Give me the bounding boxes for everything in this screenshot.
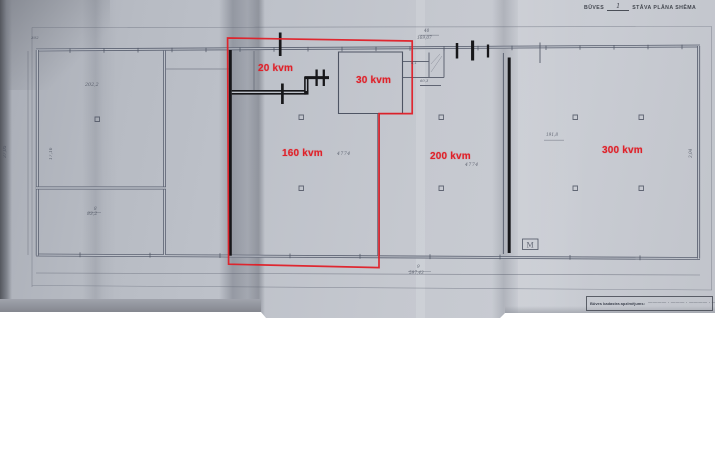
dimension-text: 4,1 xyxy=(411,61,417,65)
dimension-lines xyxy=(28,35,700,275)
room-size-label: 20 kvm xyxy=(258,64,293,74)
dimension-text: 191,8 xyxy=(546,133,558,137)
title-block-label: Būves kadastra apzīmējums: xyxy=(590,301,645,306)
column-symbols xyxy=(95,115,644,191)
dimension-text: 17,16 xyxy=(50,147,54,160)
dimension-text: 302 xyxy=(31,36,39,40)
dimension-text: 202,2 xyxy=(85,84,99,89)
marker-ticks xyxy=(280,33,488,105)
floor-plan-drawing: M xyxy=(0,0,715,318)
room-size-label: 200 kvm xyxy=(430,152,471,162)
title-block: Būves kadastra apzīmējums: ———— · ——— · … xyxy=(586,296,713,311)
dimension-text: 83,2 xyxy=(87,213,97,218)
sheet-border xyxy=(32,27,712,291)
dimension-text: 40 xyxy=(424,29,429,33)
room-size-label: 300 kvm xyxy=(602,146,643,156)
floor-plan-photo: M 20 kvm 30 kvm 160 kvm 200 kvm 300 kvm … xyxy=(0,0,715,318)
screenshot-canvas: M 20 kvm 30 kvm 160 kvm 200 kvm 300 kvm … xyxy=(0,0,715,473)
dimension-text: 9 xyxy=(417,265,420,269)
dimension-text: 3,04 xyxy=(689,149,693,158)
dimension-text: 4774 xyxy=(337,153,351,158)
dimension-text: 597,43 xyxy=(409,271,424,275)
dimension-text: 4774 xyxy=(465,164,479,169)
dimension-text: 60,3 xyxy=(420,79,428,83)
room-size-label: 30 kvm xyxy=(356,76,391,86)
drawing-title-prefix: BŪVES xyxy=(584,5,604,11)
room-size-label: 160 kvm xyxy=(282,149,323,159)
dimension-text: 8 xyxy=(94,207,97,211)
drawing-title: BŪVES 1 STĀVA PLĀNA SHĒMA xyxy=(584,3,714,11)
dimension-text: 37,05 xyxy=(4,145,8,158)
drawing-title-number: 1 xyxy=(607,3,629,11)
title-block-value: ———— · ——— · ———— · ——— xyxy=(648,301,715,306)
page-margin xyxy=(0,318,715,473)
drawing-title-suffix: STĀVA PLĀNA SHĒMA xyxy=(632,5,696,11)
utility-room-letter: M xyxy=(527,242,534,250)
dimension-text: 169,07 xyxy=(417,36,432,40)
